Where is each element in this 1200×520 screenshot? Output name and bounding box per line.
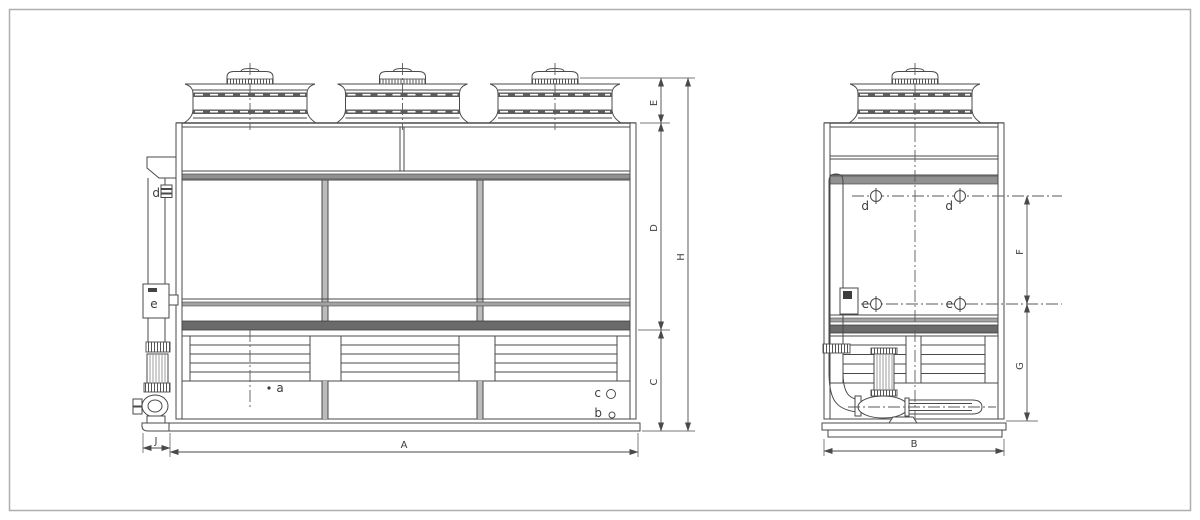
air-inlet-louvers-front [182, 336, 630, 381]
port-label-d-right: d [945, 199, 953, 213]
front-view: a c b d [133, 63, 695, 457]
overflow-port-icon [607, 390, 616, 399]
dim-label-F: F [1015, 249, 1026, 255]
port-label-a: a [276, 381, 283, 395]
base-frame-front [142, 423, 640, 431]
dim-label-C: C [649, 378, 660, 385]
dim-label-J: J [154, 436, 158, 447]
air-inlet-louvers-side [830, 336, 998, 383]
port-label-e-left: e [862, 297, 869, 311]
panel-divider [322, 180, 328, 321]
right-edge-strip [998, 123, 1004, 419]
louver-post [310, 336, 341, 381]
pipe-bracket [147, 157, 176, 178]
technical-drawing-canvas: a c b d [0, 0, 1200, 520]
fan-stack [337, 63, 469, 130]
eliminator-band [182, 321, 630, 330]
spray-point-marker [267, 386, 270, 389]
side-view: d d e e [822, 63, 1062, 456]
port-label-b: b [594, 406, 602, 420]
cooling-tower-drawing-page: a c b d [0, 0, 1200, 520]
drain-port-icon [609, 412, 615, 418]
dim-label-D: D [649, 224, 660, 232]
port-label-d-left: d [861, 199, 869, 213]
control-box [143, 284, 178, 318]
water-basin-front: a c b [176, 381, 636, 420]
pipe-connections-side: d d e e [846, 188, 1062, 312]
pump-pedestal [889, 417, 917, 423]
fan-stack [489, 63, 621, 130]
port-label-e-right: e [946, 297, 953, 311]
dim-label-H: H [676, 253, 687, 261]
louver-panel [921, 336, 985, 383]
louver-post [459, 336, 495, 381]
circulation-pump [133, 342, 170, 423]
dimensions-front: E D C H A J [143, 78, 695, 457]
inlet-flange [161, 185, 172, 198]
port-label-d: d [152, 186, 160, 200]
dim-label-G: G [1015, 362, 1026, 370]
louver-post [906, 336, 921, 383]
fan-stack [849, 63, 981, 130]
dim-label-B: B [911, 439, 918, 450]
panel-divider [477, 180, 483, 321]
left-edge-strip [176, 123, 182, 419]
eliminator-band [830, 325, 998, 333]
port-label-c: c [594, 386, 601, 400]
base-skid [828, 430, 1002, 437]
riser-and-pump-front: d e [133, 157, 178, 423]
dim-label-E: E [649, 100, 660, 106]
dim-label-A: A [401, 440, 408, 451]
right-edge-strip [630, 123, 636, 419]
port-label-e: e [150, 297, 157, 311]
louver-panel [341, 336, 459, 381]
fan-stack [184, 63, 316, 130]
louver-panel [495, 336, 617, 381]
